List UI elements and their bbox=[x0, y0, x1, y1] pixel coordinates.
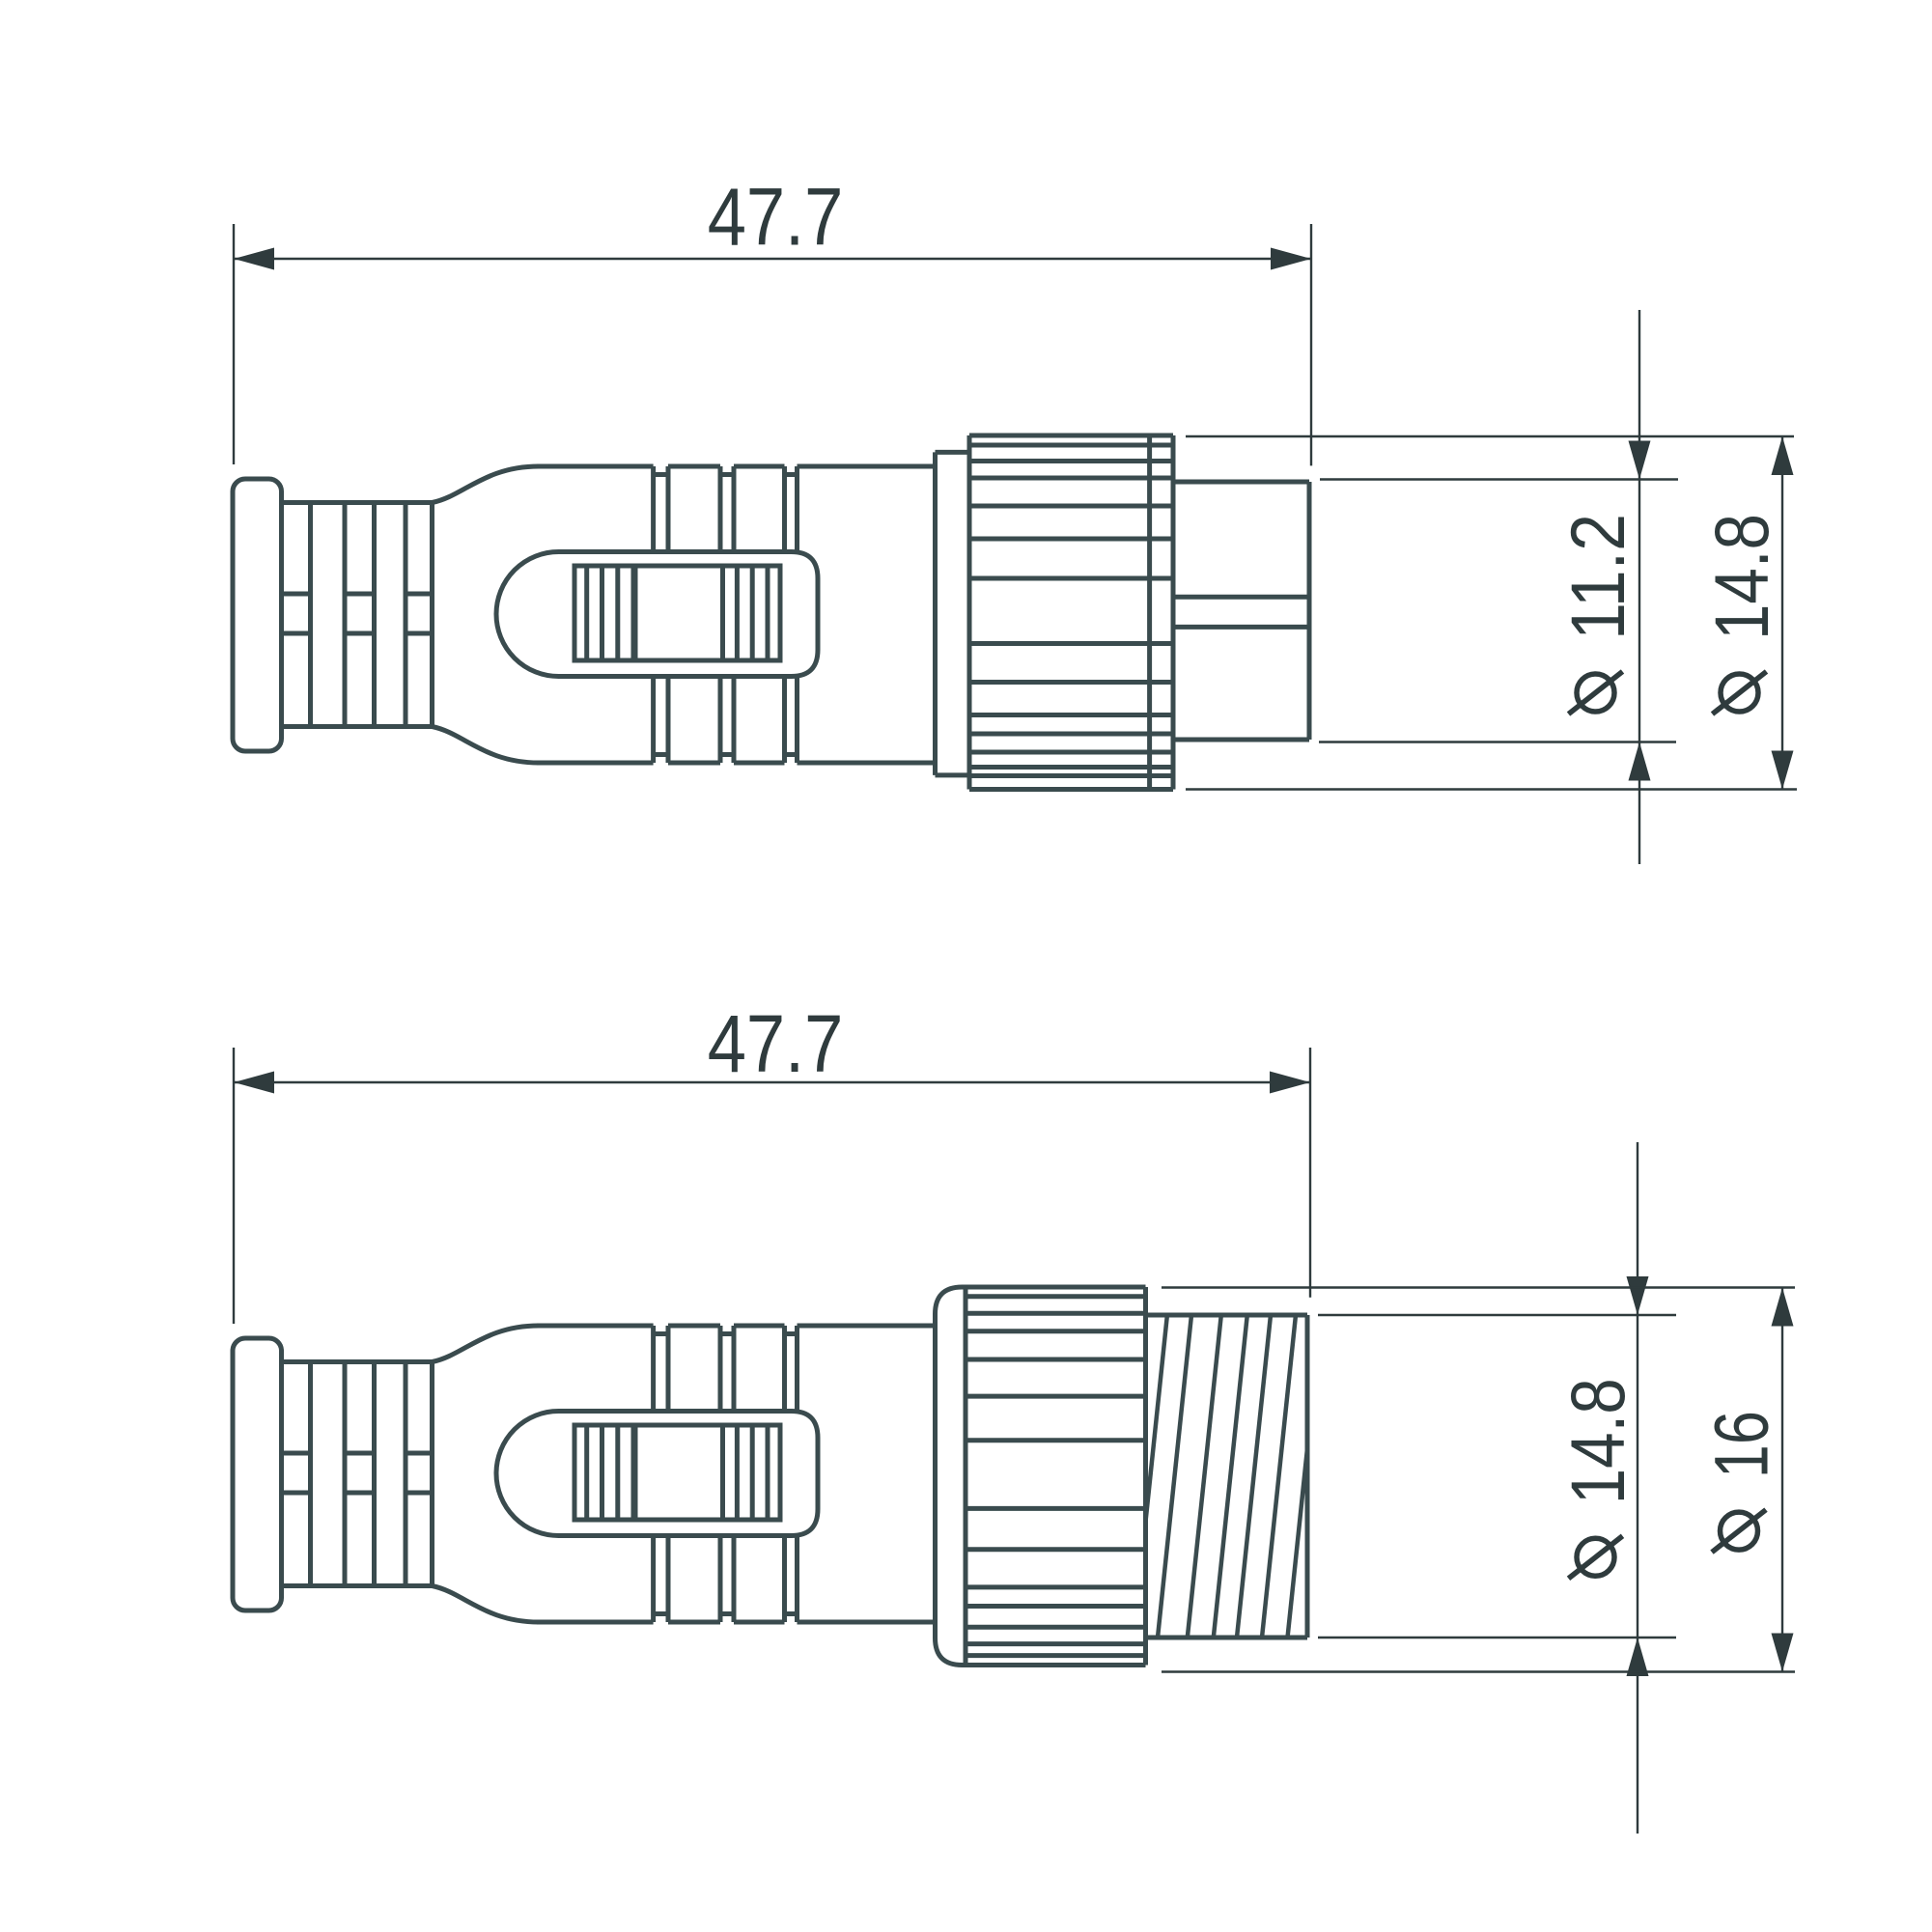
svg-text:47.7: 47.7 bbox=[708, 998, 844, 1089]
svg-text:47.7: 47.7 bbox=[708, 171, 844, 262]
svg-text:11.2: 11.2 bbox=[1554, 514, 1640, 640]
svg-text:14.8: 14.8 bbox=[1698, 514, 1784, 640]
svg-text:14.8: 14.8 bbox=[1554, 1378, 1640, 1504]
svg-text:16: 16 bbox=[1698, 1411, 1784, 1478]
